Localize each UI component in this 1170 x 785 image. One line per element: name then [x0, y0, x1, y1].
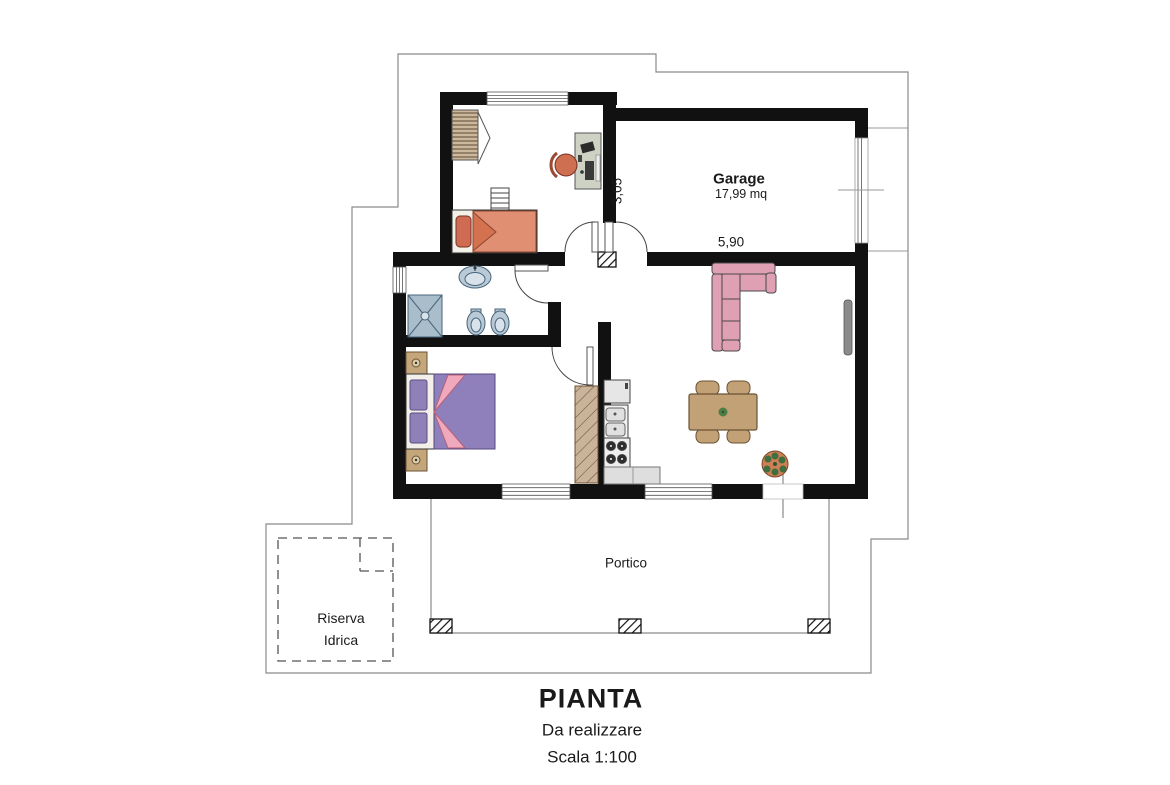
- kitchen-sink: [604, 405, 628, 438]
- garage-room-label: Garage: [713, 172, 765, 187]
- dining-chair: [696, 381, 719, 395]
- entrance-door-opening: [763, 484, 803, 499]
- nightstand: [406, 352, 427, 374]
- shower: [408, 295, 442, 337]
- radiator: [844, 300, 852, 355]
- dining-table: [689, 394, 757, 430]
- desk: [575, 133, 601, 189]
- water-reserve-label-line2: Idrica: [324, 633, 358, 647]
- wardrobe-open-doors: [478, 112, 490, 164]
- dining-chair: [727, 381, 750, 395]
- kitchen-counter: [604, 467, 660, 484]
- bidet: [467, 309, 485, 335]
- wardrobe: [452, 110, 478, 160]
- stove: [604, 438, 630, 468]
- dining-chair: [727, 429, 750, 443]
- window-bedroom2-top: [487, 92, 568, 105]
- garage-door: [838, 128, 908, 251]
- bedroom-wardrobe: [575, 386, 598, 483]
- door-bedroom: [552, 347, 593, 385]
- garage-width-dimension: 5,90: [718, 235, 744, 249]
- portico-pillars: [430, 619, 830, 633]
- water-reserve-label-line1: Riserva: [317, 611, 364, 625]
- page-subtitle: Da realizzare: [542, 722, 642, 739]
- bathroom-fixtures: [408, 266, 509, 337]
- portico-pillar: [619, 619, 641, 633]
- nightstand: [406, 449, 427, 471]
- garage-depth-dimension: 3,05: [610, 178, 624, 204]
- corner-sofa: [712, 263, 776, 351]
- fridge: [604, 380, 630, 403]
- toilet: [491, 309, 509, 335]
- bedroom2-furniture: [452, 110, 601, 253]
- portico-pillar: [430, 619, 452, 633]
- column: [598, 252, 616, 267]
- floor-plan-drawing: [0, 0, 1170, 785]
- portico-pillar: [808, 619, 830, 633]
- garage-area-label: 17,99 mq: [715, 188, 767, 201]
- washbasin: [459, 266, 491, 288]
- double-bed: [406, 374, 495, 449]
- potted-plant: [762, 451, 788, 477]
- dining-chair: [696, 429, 719, 443]
- portico-label: Portico: [605, 556, 647, 570]
- living-furniture: [689, 263, 852, 477]
- floor-plan-page: Garage 17,99 mq 5,90 3,05 Portico Riserv…: [0, 0, 1170, 785]
- bedroom-furniture: [406, 352, 598, 483]
- door-garage-interior: [605, 222, 647, 252]
- window-bedroom-south: [502, 484, 570, 499]
- door-bedroom2: [565, 222, 598, 252]
- door-bathroom: [515, 265, 548, 303]
- scale-label: Scala 1:100: [547, 749, 637, 766]
- single-bed: [452, 210, 537, 253]
- desk-chair: [551, 153, 577, 177]
- window-bathroom-west: [393, 267, 406, 293]
- kitchen-furniture: [604, 380, 660, 484]
- window-kitchen-south: [645, 484, 712, 499]
- page-title: PIANTA: [539, 686, 644, 713]
